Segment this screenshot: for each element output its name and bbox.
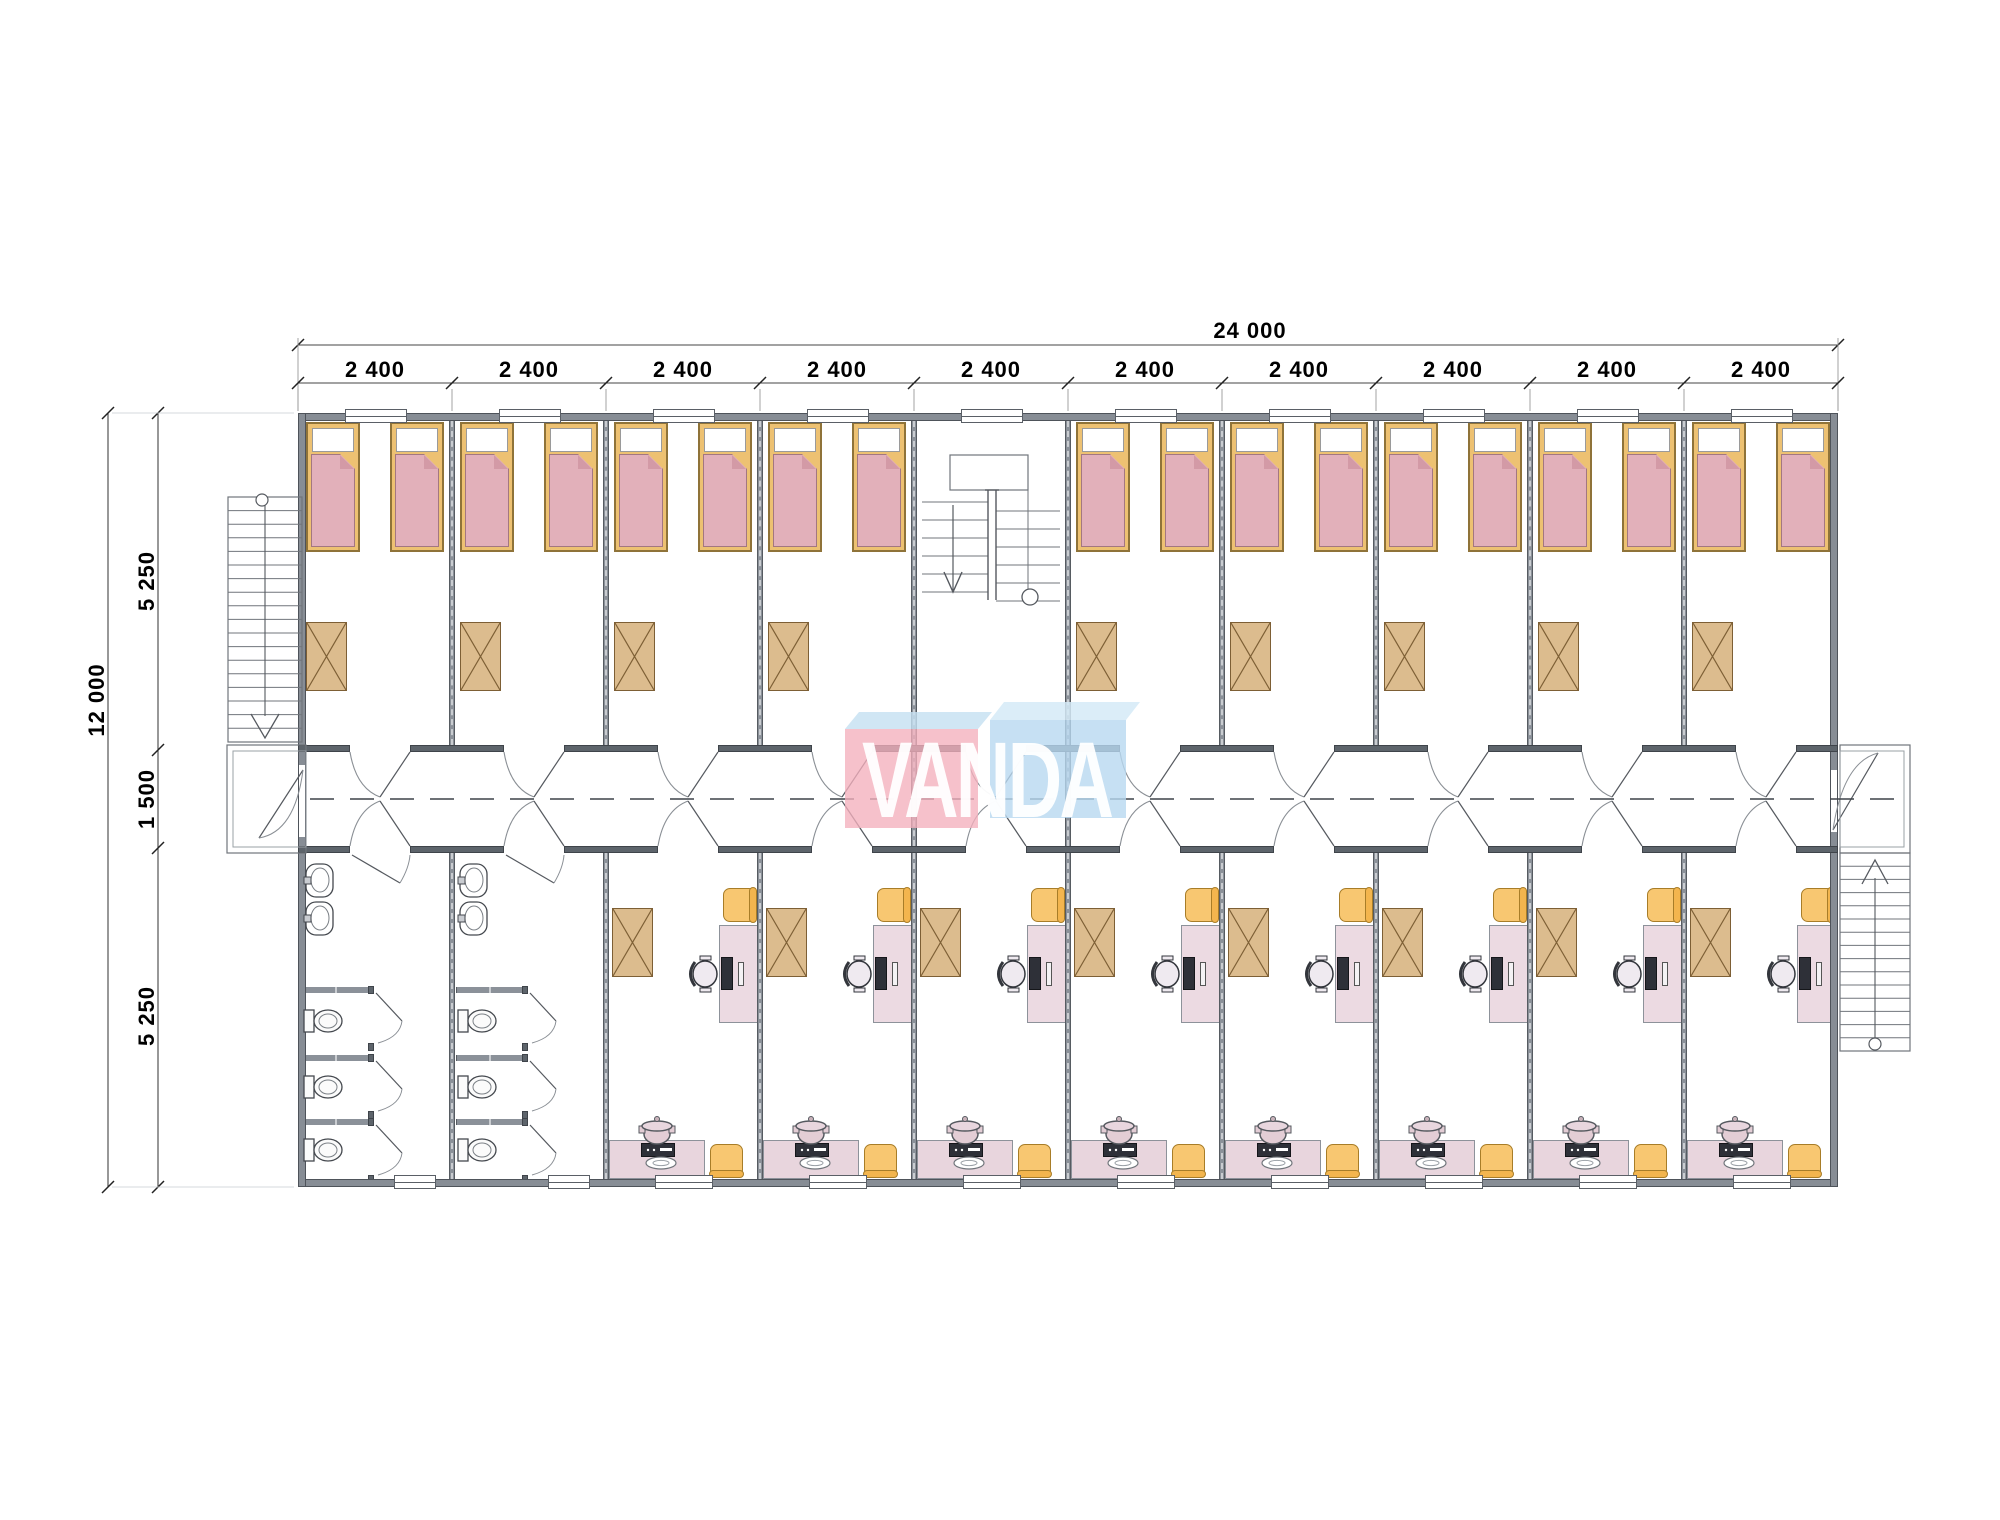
corridor-door-leaf: [1304, 801, 1334, 846]
plate: [1724, 1157, 1754, 1169]
corridor-door-leaf: [1458, 752, 1488, 797]
bathroom-door-swing: [400, 855, 410, 883]
cooktop-display: [1122, 1148, 1134, 1151]
cooktop-knob: [1577, 1149, 1579, 1151]
office-chair-seat: [693, 961, 717, 987]
corridor-door-leaf: [380, 752, 410, 797]
cooktop-knob: [647, 1149, 649, 1151]
corridor-door-leaf: [688, 752, 718, 797]
office-chair-armrest: [1316, 988, 1327, 992]
plate: [1570, 1157, 1600, 1169]
left-stair-arrow: [251, 714, 279, 738]
pot-lid: [642, 1121, 672, 1131]
cooktop-knob: [1571, 1149, 1573, 1151]
office-chair-seat: [1617, 961, 1641, 987]
corridor-door-swing: [504, 752, 534, 797]
office-chair-armrest: [1008, 956, 1019, 960]
corridor-door-leaf: [1150, 752, 1180, 797]
corridor-door-swing: [966, 752, 996, 797]
sink-tap: [304, 915, 311, 922]
stall-door-leaf: [376, 1125, 402, 1153]
cooktop-knob: [1423, 1149, 1425, 1151]
pot-lid: [1412, 1121, 1442, 1131]
cooktop-display: [660, 1148, 672, 1151]
toilet-bowl: [314, 1139, 342, 1161]
dimension-total-width: 24 000: [1213, 318, 1286, 344]
pot-lid-knob: [655, 1117, 660, 1122]
pot-lid-knob: [963, 1117, 968, 1122]
pot-lid-knob: [809, 1117, 814, 1122]
sink-tap: [458, 915, 465, 922]
toilet-tank: [304, 1010, 314, 1032]
corridor-door-swing: [1582, 752, 1612, 797]
stall-door-leaf: [530, 1061, 556, 1089]
cooktop-display: [1430, 1148, 1442, 1151]
office-chair-seat: [1309, 961, 1333, 987]
dimension-depth-segment-corridor: 1 500: [134, 769, 160, 829]
toilet-tank: [458, 1139, 468, 1161]
toilet-bowl: [314, 1010, 342, 1032]
bay-width-label: 2 400: [961, 357, 1021, 383]
pot-lid: [1566, 1121, 1596, 1131]
bathroom-door-leaf: [352, 855, 400, 883]
bay-width-label: 2 400: [1423, 357, 1483, 383]
toilet-tank: [458, 1010, 468, 1032]
plate: [954, 1157, 984, 1169]
left-stair-start: [256, 494, 268, 506]
corridor-door-swing: [658, 752, 688, 797]
toilet-bowl: [468, 1010, 496, 1032]
corridor-door-leaf: [1766, 801, 1796, 846]
cooktop-knob: [653, 1149, 655, 1151]
corridor-door-leaf: [842, 801, 872, 846]
office-chair-seat: [1771, 961, 1795, 987]
office-chair-armrest: [1624, 956, 1635, 960]
cooktop-knob: [961, 1149, 963, 1151]
cooktop-knob: [1263, 1149, 1265, 1151]
stall-door-leaf: [530, 1125, 556, 1153]
toilet-tank: [304, 1139, 314, 1161]
pot-lid-knob: [1733, 1117, 1738, 1122]
stall-door-swing: [378, 1153, 402, 1175]
corridor-door-swing: [504, 801, 534, 846]
cooktop-knob: [1109, 1149, 1111, 1151]
stall-door-leaf: [530, 993, 556, 1021]
stall-door-swing: [532, 1153, 556, 1175]
cooktop-display: [968, 1148, 980, 1151]
plate: [800, 1157, 830, 1169]
corridor-door-leaf: [1304, 752, 1334, 797]
stall-door-leaf: [376, 1061, 402, 1089]
right-stair-start: [1869, 1038, 1881, 1050]
corridor-door-swing: [1274, 801, 1304, 846]
stair-landing: [950, 455, 1028, 490]
office-chair-armrest: [1470, 988, 1481, 992]
office-chair-seat: [1001, 961, 1025, 987]
plan-linework: [0, 0, 2000, 1520]
left-porch: [227, 745, 306, 853]
cooktop-knob: [801, 1149, 803, 1151]
stall-door-swing: [378, 1021, 402, 1043]
cooktop-display: [1584, 1148, 1596, 1151]
corridor-door-leaf: [842, 752, 872, 797]
toilet-bowl: [468, 1139, 496, 1161]
toilet-tank: [458, 1076, 468, 1098]
corridor-door-swing: [1120, 752, 1150, 797]
office-chair-seat: [1155, 961, 1179, 987]
cooktop-knob: [1731, 1149, 1733, 1151]
office-chair-armrest: [1778, 988, 1789, 992]
toilet-bowl: [314, 1076, 342, 1098]
cooktop-display: [1276, 1148, 1288, 1151]
stall-door-swing: [532, 1021, 556, 1043]
floor-plan-canvas: 24 000 2 4002 4002 4002 4002 4002 4002 4…: [0, 0, 2000, 1520]
dimension-depth-segment-top: 5 250: [134, 551, 160, 611]
plate: [1262, 1157, 1292, 1169]
pot-lid: [950, 1121, 980, 1131]
cooktop-knob: [1115, 1149, 1117, 1151]
cooktop-knob: [1417, 1149, 1419, 1151]
corridor-door-swing: [966, 801, 996, 846]
pot-lid: [1258, 1121, 1288, 1131]
bay-width-label: 2 400: [653, 357, 713, 383]
bay-width-label: 2 400: [807, 357, 867, 383]
cooktop-knob: [1725, 1149, 1727, 1151]
corridor-door-swing: [658, 801, 688, 846]
bay-width-label: 2 400: [345, 357, 405, 383]
corridor-door-leaf: [534, 801, 564, 846]
corridor-door-swing: [1120, 801, 1150, 846]
bay-width-label: 2 400: [1577, 357, 1637, 383]
cooktop-display: [814, 1148, 826, 1151]
corridor-door-swing: [1274, 752, 1304, 797]
plate: [1416, 1157, 1446, 1169]
office-chair-armrest: [1162, 988, 1173, 992]
pot-lid: [796, 1121, 826, 1131]
corridor-door-swing: [350, 801, 380, 846]
stall-door-swing: [532, 1089, 556, 1111]
bathroom-door-swing: [554, 855, 564, 883]
office-chair-armrest: [854, 956, 865, 960]
stair-newel: [1022, 589, 1038, 605]
sink-tap: [458, 877, 465, 884]
pot-lid: [1104, 1121, 1134, 1131]
office-chair-seat: [847, 961, 871, 987]
cooktop-knob: [807, 1149, 809, 1151]
corridor-door-leaf: [380, 801, 410, 846]
office-chair-armrest: [1624, 988, 1635, 992]
corridor-door-leaf: [688, 801, 718, 846]
office-chair-seat: [1463, 961, 1487, 987]
bay-width-label: 2 400: [1115, 357, 1175, 383]
office-chair-armrest: [700, 988, 711, 992]
corridor-door-leaf: [534, 752, 564, 797]
corridor-door-swing: [1736, 752, 1766, 797]
toilet-tank: [304, 1076, 314, 1098]
toilet-bowl: [468, 1076, 496, 1098]
corridor-door-leaf: [1458, 801, 1488, 846]
left-exit-door-leaf: [259, 770, 303, 838]
cooktop-display: [1738, 1148, 1750, 1151]
stall-door-swing: [378, 1089, 402, 1111]
corridor-door-leaf: [996, 801, 1026, 846]
office-chair-armrest: [854, 988, 865, 992]
bay-width-label: 2 400: [499, 357, 559, 383]
pot-lid: [1720, 1121, 1750, 1131]
office-chair-armrest: [1470, 956, 1481, 960]
bay-width-label: 2 400: [1269, 357, 1329, 383]
plate: [646, 1157, 676, 1169]
corridor-door-leaf: [1612, 752, 1642, 797]
cooktop-knob: [1269, 1149, 1271, 1151]
left-porch-inner: [233, 751, 306, 847]
corridor-door-leaf: [996, 752, 1026, 797]
corridor-door-leaf: [1612, 801, 1642, 846]
sink-tap: [304, 877, 311, 884]
dimension-total-depth: 12 000: [84, 663, 110, 736]
corridor-door-swing: [1428, 752, 1458, 797]
corridor-door-swing: [812, 801, 842, 846]
pot-lid-knob: [1425, 1117, 1430, 1122]
corridor-door-swing: [812, 752, 842, 797]
corridor-door-leaf: [1766, 752, 1796, 797]
plate: [1108, 1157, 1138, 1169]
corridor-door-swing: [350, 752, 380, 797]
office-chair-armrest: [700, 956, 711, 960]
bathroom-door-leaf: [506, 855, 554, 883]
pot-lid-knob: [1579, 1117, 1584, 1122]
office-chair-armrest: [1778, 956, 1789, 960]
dimension-depth-segment-bottom: 5 250: [134, 986, 160, 1046]
corridor-door-leaf: [1150, 801, 1180, 846]
office-chair-armrest: [1162, 956, 1173, 960]
pot-lid-knob: [1271, 1117, 1276, 1122]
office-chair-armrest: [1008, 988, 1019, 992]
corridor-door-swing: [1736, 801, 1766, 846]
cooktop-knob: [955, 1149, 957, 1151]
corridor-door-swing: [1582, 801, 1612, 846]
corridor-door-swing: [1428, 801, 1458, 846]
stall-door-leaf: [376, 993, 402, 1021]
pot-lid-knob: [1117, 1117, 1122, 1122]
bay-width-label: 2 400: [1731, 357, 1791, 383]
office-chair-armrest: [1316, 956, 1327, 960]
